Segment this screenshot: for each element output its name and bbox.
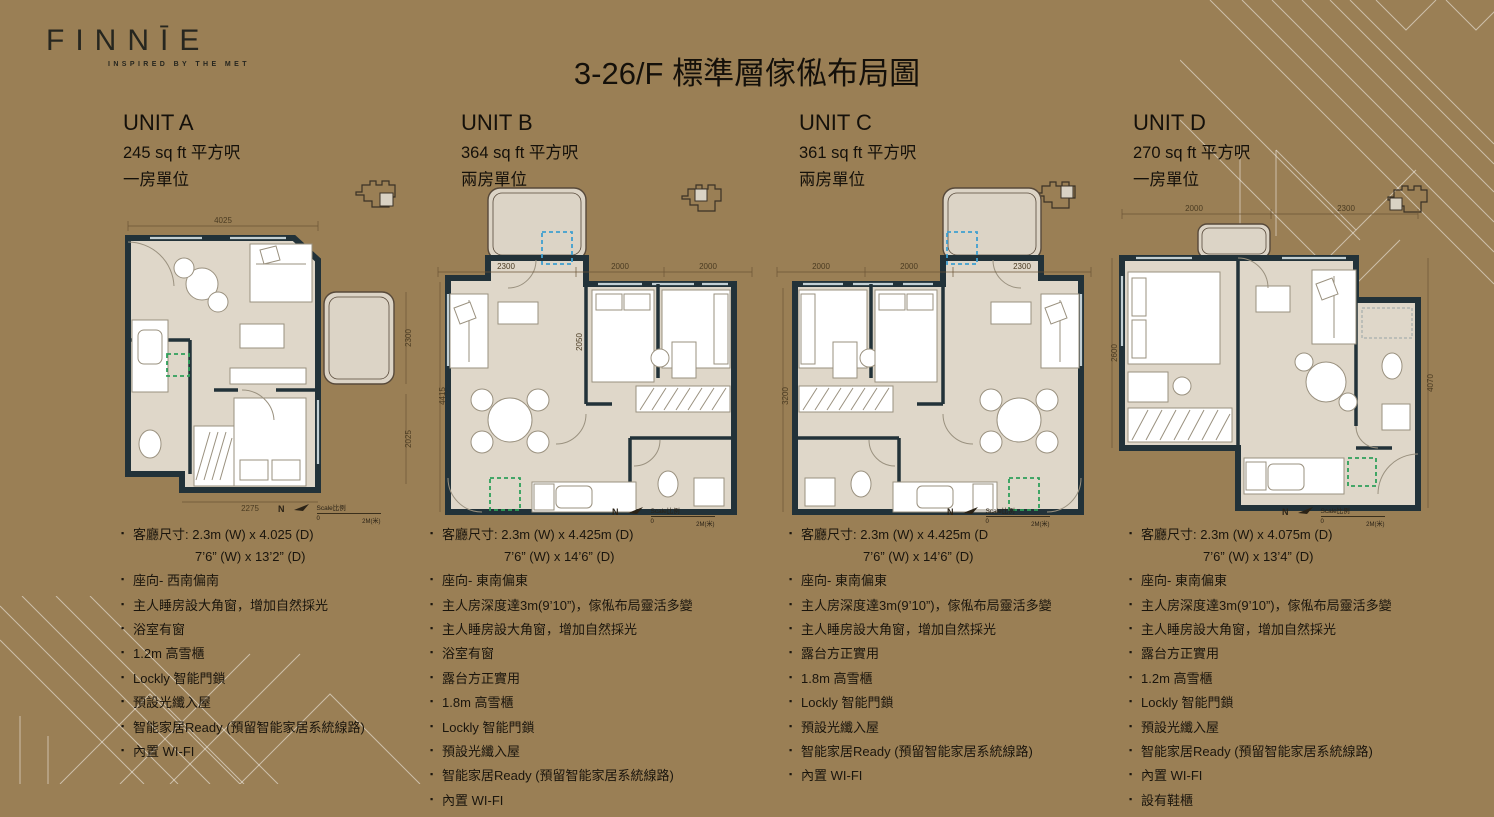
feature-item: 客廳尺寸: 2.3m (W) x 4.425m (D7’6” (W) x 14’… [789,527,1094,566]
feature-item: 智能家居Ready (預留智能家居系統線路) [1129,744,1434,761]
basin [694,478,724,506]
floorplan-unit-c: 2000 2000 2300 3200 [773,182,1093,527]
compass-scale: N Scale比例 02M(米) [278,502,381,525]
pillow [272,460,300,480]
unit-area: 364 sq ft 平方呎 [461,139,783,163]
north-arrow-icon [1296,505,1314,515]
dining-table [488,398,532,442]
feature-item: 預設光纖入屋 [789,720,1094,737]
feature-item: 1.8m 高雪櫃 [789,671,1094,688]
chair [1173,377,1191,395]
north-arrow-icon [961,505,979,515]
desk [833,342,857,378]
svg-text:2000: 2000 [699,262,717,271]
feature-item: 主人房深度達3m(9’10”)，傢俬布局靈活多變 [1129,598,1434,615]
feature-item: 露台方正實用 [430,671,735,688]
feature-item: 客廳尺寸: 2.3m (W) x 4.075m (D)7’6” (W) x 13… [1129,527,1434,566]
feature-item: 座向- 西南偏南 [121,573,426,590]
svg-text:4025: 4025 [214,216,232,225]
wardrobe [194,426,234,486]
north-label: N [612,507,619,517]
tv-cabinet [498,302,538,324]
feature-item: 主人睡房設大角窗，增加自然採光 [789,622,1094,639]
north-label: N [947,507,954,517]
feature-item: 主人睡房設大角窗，增加自然採光 [430,622,735,639]
chair [1295,353,1313,371]
basin [805,478,835,506]
chair [208,292,228,312]
scale-bar: Scale比例 02M(米) [651,505,715,528]
chair [1036,431,1058,453]
floorplan-unit-b: 2300 2000 2000 4415 2050 [436,182,756,527]
north-label: N [278,504,285,514]
feature-item: 預設光纖入屋 [1129,720,1434,737]
feature-item: 1.2m 高雪櫃 [1129,671,1434,688]
north-arrow-icon [626,505,644,515]
toilet [139,430,161,458]
feature-item: Lockly 智能門鎖 [430,720,735,737]
tv-cabinet [1256,286,1290,312]
feature-item: 露台方正實用 [1129,646,1434,663]
feature-item: Lockly 智能門鎖 [1129,695,1434,712]
unit-c-features: 客廳尺寸: 2.3m (W) x 4.425m (D7’6” (W) x 14’… [789,527,1094,793]
pillow [907,294,933,310]
feature-item: 內置 WI-FI [430,793,735,810]
chair [1339,393,1357,411]
scale-bar: Scale比例 02M(米) [317,502,381,525]
svg-text:2275: 2275 [241,504,259,512]
pillow [624,294,650,310]
feature-item: 設有鞋櫃 [1129,793,1434,810]
sink [1268,464,1304,490]
desk [1128,372,1168,402]
dining-table [1306,362,1346,402]
chair [1036,389,1058,411]
feature-subline: 7’6” (W) x 14’6” (D) [801,549,1094,566]
pillow [1132,320,1146,358]
pillow [879,294,905,310]
feature-item: 主人房深度達3m(9’10”)，傢俬布局靈活多變 [430,598,735,615]
keyplan-icon [352,176,400,216]
pillow [714,294,728,364]
feature-item: 客廳尺寸: 2.3m (W) x 4.025 (D)7’6” (W) x 13’… [121,527,426,566]
feature-item: 座向- 東南偏東 [789,573,1094,590]
pillow [801,294,815,364]
feature-item: 主人睡房設大角窗，增加自然採光 [121,598,426,615]
feature-subline: 7’6” (W) x 13’2” (D) [133,549,426,566]
balcony [1198,224,1270,258]
feature-item: 1.2m 高雪櫃 [121,646,426,663]
sink [556,486,592,508]
page-title: 3-26/F 標準層傢俬布局圖 [0,48,1494,93]
svg-text:2000: 2000 [1185,204,1203,213]
svg-text:4415: 4415 [438,387,447,405]
feature-item: 座向- 東南偏東 [430,573,735,590]
svg-text:4070: 4070 [1426,374,1435,392]
page: { "page": { "title": "3-26/F 標準層傢俬布局圖", … [0,0,1494,784]
compass-scale: N Scale比例 02M(米) [612,505,715,528]
toilet [851,471,871,497]
chair [651,349,669,367]
balcony [488,188,586,260]
svg-text:2000: 2000 [812,262,830,271]
feature-item: 智能家居Ready (預留智能家居系統線路) [121,720,426,737]
svg-text:3200: 3200 [781,387,790,405]
unit-name: UNIT A [123,110,445,136]
feature-item: 主人房深度達3m(9’10”)，傢俬布局靈活多變 [789,598,1094,615]
feature-item: Lockly 智能門鎖 [121,671,426,688]
feature-item: 預設光纖入屋 [430,744,735,761]
svg-text:2600: 2600 [1110,344,1119,362]
desk [672,342,696,378]
feature-item: 主人睡房設大角窗，增加自然採光 [1129,622,1434,639]
unit-b-header: UNIT B 364 sq ft 平方呎 兩房單位 [461,110,783,190]
unit-d-features: 客廳尺寸: 2.3m (W) x 4.075m (D)7’6” (W) x 13… [1129,527,1434,817]
scale-bar: Scale比例 02M(米) [986,505,1050,528]
console [230,368,306,384]
feature-subline: 7’6” (W) x 13’4” (D) [1141,549,1434,566]
pillow [240,460,268,480]
feature-item: 浴室有窗 [430,646,735,663]
compass-scale: N Scale比例 02M(米) [1282,505,1385,528]
toilet [658,471,678,497]
svg-text:2000: 2000 [611,262,629,271]
unit-b-features: 客廳尺寸: 2.3m (W) x 4.425m (D)7’6” (W) x 14… [430,527,735,817]
balcony [324,292,394,384]
scale-bar: Scale比例 02M(米) [1321,505,1385,528]
svg-text:2300: 2300 [1337,204,1355,213]
tv-cabinet [991,302,1031,324]
unit-area: 270 sq ft 平方呎 [1133,139,1455,163]
svg-text:2000: 2000 [900,262,918,271]
feature-item: Lockly 智能門鎖 [789,695,1094,712]
sink [138,330,162,364]
feature-item: 內置 WI-FI [1129,768,1434,785]
basin [1382,404,1410,430]
unit-name: UNIT B [461,110,783,136]
balcony [943,188,1041,260]
north-arrow-icon [292,502,310,512]
feature-item: 露台方正實用 [789,646,1094,663]
dining-table [997,398,1041,442]
pillow [1132,278,1146,316]
chair [471,389,493,411]
chair [527,431,549,453]
unit-name: UNIT D [1133,110,1455,136]
toilet [1382,353,1402,379]
compass-scale: N Scale比例 02M(米) [947,505,1050,528]
svg-text:2025: 2025 [404,430,413,448]
feature-item: 內置 WI-FI [789,768,1094,785]
feature-item: 智能家居Ready (預留智能家居系統線路) [789,744,1094,761]
feature-item: 內置 WI-FI [121,744,426,761]
unit-area: 245 sq ft 平方呎 [123,139,445,163]
feature-item: 浴室有窗 [121,622,426,639]
pillow [596,294,622,310]
svg-text:2050: 2050 [575,333,584,351]
chair [471,431,493,453]
feature-item: 座向- 東南偏東 [1129,573,1434,590]
feature-item: 1.8m 高雪櫃 [430,695,735,712]
feature-item: 預設光纖入屋 [121,695,426,712]
sofa [250,244,312,302]
chair [174,258,194,278]
chair [980,389,1002,411]
unit-area: 361 sq ft 平方呎 [799,139,1121,163]
chair [980,431,1002,453]
unit-d-header: UNIT D 270 sq ft 平方呎 一房單位 [1133,110,1455,190]
coffee-table [240,324,284,348]
north-label: N [1282,507,1289,517]
feature-item: 客廳尺寸: 2.3m (W) x 4.425m (D)7’6” (W) x 14… [430,527,735,566]
unit-a-features: 客廳尺寸: 2.3m (W) x 4.025 (D)7’6” (W) x 13’… [121,527,426,768]
svg-text:2300: 2300 [1013,262,1031,271]
chair [527,389,549,411]
feature-subline: 7’6” (W) x 14’6” (D) [442,549,735,566]
appliance [534,484,554,510]
floorplan-unit-d: 2000 2300 2600 4070 [1106,196,1436,526]
floorplan-unit-a: 4025 2300 2025 2275 [110,212,415,512]
appliance [1246,462,1266,490]
feature-item: 智能家居Ready (預留智能家居系統線路) [430,768,735,785]
svg-text:2300: 2300 [497,262,515,271]
unit-name: UNIT C [799,110,1121,136]
svg-text:2300: 2300 [404,329,413,347]
